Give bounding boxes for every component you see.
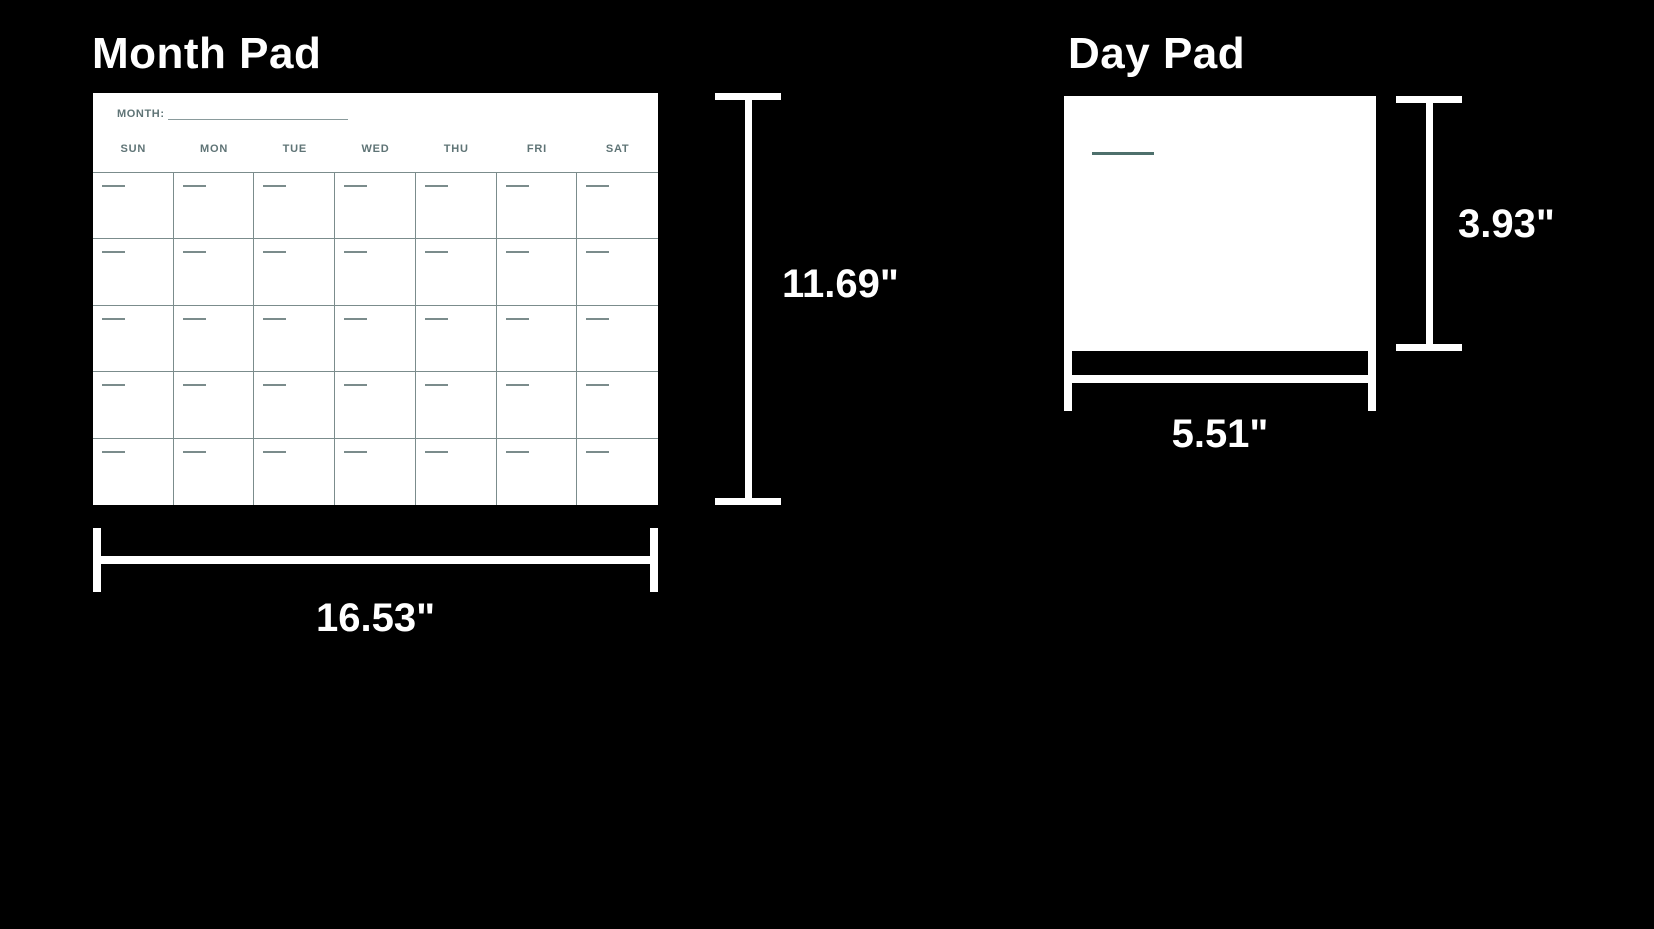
date-line [425, 185, 448, 187]
calendar-cell [93, 439, 174, 505]
date-line [102, 318, 125, 320]
month-pad-width-label: 16.53" [93, 596, 658, 641]
calendar-cell [577, 306, 658, 372]
day-pad-card [1064, 96, 1376, 351]
calendar-cell [174, 306, 255, 372]
date-line [425, 318, 448, 320]
date-line [506, 451, 529, 453]
calendar-cell [335, 173, 416, 239]
date-line [263, 185, 286, 187]
calendar-cell [174, 372, 255, 438]
date-line [263, 384, 286, 386]
date-line [344, 318, 367, 320]
day-header-mon: MON [174, 143, 255, 155]
calendar-cell [174, 173, 255, 239]
date-line [586, 185, 609, 187]
date-line [425, 451, 448, 453]
date-line [102, 384, 125, 386]
calendar-cell [254, 306, 335, 372]
calendar-cell [93, 239, 174, 305]
dimension-cap-left [1064, 347, 1072, 411]
calendar-cell [254, 439, 335, 505]
month-pad-height-label: 11.69" [782, 262, 899, 307]
calendar-cell [497, 439, 578, 505]
calendar-grid [93, 172, 658, 505]
date-line [506, 251, 529, 253]
calendar-cell [416, 173, 497, 239]
dimension-stem [1426, 103, 1433, 344]
date-line [586, 384, 609, 386]
date-line [102, 451, 125, 453]
calendar-cell [497, 239, 578, 305]
month-field-label: MONTH: [117, 108, 165, 120]
calendar-cell [577, 439, 658, 505]
calendar-day-header-row: SUNMONTUEWEDTHUFRISAT [93, 143, 658, 155]
calendar-cell [93, 372, 174, 438]
month-field-underline [168, 107, 348, 120]
month-pad-width-dimension-line [93, 528, 658, 592]
calendar-cell [577, 173, 658, 239]
day-header-fri: FRI [497, 143, 578, 155]
date-line [102, 185, 125, 187]
dimension-cap-bottom [1396, 344, 1462, 351]
calendar-cell [497, 173, 578, 239]
calendar-cell [254, 372, 335, 438]
calendar-cell [174, 239, 255, 305]
date-line [425, 251, 448, 253]
dimension-stem [1072, 375, 1368, 383]
calendar-cell [497, 306, 578, 372]
date-line [183, 251, 206, 253]
dimension-cap-right [650, 528, 658, 592]
month-pad-card: MONTH: SUNMONTUEWEDTHUFRISAT [93, 93, 658, 505]
calendar-cell [416, 306, 497, 372]
calendar-cell [577, 239, 658, 305]
calendar-cell [93, 173, 174, 239]
calendar-cell [416, 372, 497, 438]
day-pad-width-label: 5.51" [1064, 412, 1376, 457]
date-line [586, 318, 609, 320]
day-header-sat: SAT [577, 143, 658, 155]
date-line [344, 251, 367, 253]
calendar-cell [335, 372, 416, 438]
diagram-canvas: Month Pad MONTH: SUNMONTUEWEDTHUFRISAT 1… [0, 0, 1654, 929]
month-pad-height-dimension-line [715, 93, 781, 505]
calendar-cell [577, 372, 658, 438]
date-line [183, 185, 206, 187]
calendar-cell [335, 439, 416, 505]
calendar-cell [335, 306, 416, 372]
date-line [506, 185, 529, 187]
day-header-tue: TUE [254, 143, 335, 155]
calendar-cell [174, 439, 255, 505]
calendar-cell [254, 173, 335, 239]
dimension-cap-top [1396, 96, 1462, 103]
day-header-sun: SUN [93, 143, 174, 155]
dimension-cap-bottom [715, 498, 781, 505]
date-line [102, 251, 125, 253]
day-pad-width-dimension-line [1064, 347, 1376, 411]
day-pad-height-label: 3.93" [1458, 202, 1555, 247]
date-line [586, 451, 609, 453]
day-pad-writing-line [1092, 152, 1154, 155]
month-field: MONTH: [117, 107, 348, 120]
date-line [506, 318, 529, 320]
calendar-cell [497, 372, 578, 438]
calendar-cell [254, 239, 335, 305]
dimension-stem [745, 100, 752, 498]
date-line [425, 384, 448, 386]
date-line [263, 318, 286, 320]
date-line [344, 384, 367, 386]
day-pad-height-dimension-line [1396, 96, 1462, 351]
dimension-cap-right [1368, 347, 1376, 411]
date-line [344, 451, 367, 453]
day-header-wed: WED [335, 143, 416, 155]
dimension-cap-left [93, 528, 101, 592]
month-pad-title: Month Pad [92, 30, 321, 78]
calendar-cell [93, 306, 174, 372]
date-line [263, 451, 286, 453]
date-line [506, 384, 529, 386]
day-pad-title: Day Pad [1068, 30, 1245, 78]
calendar-cell [416, 439, 497, 505]
dimension-stem [101, 556, 650, 564]
date-line [183, 451, 206, 453]
calendar-cell [335, 239, 416, 305]
date-line [586, 251, 609, 253]
date-line [183, 318, 206, 320]
calendar-cell [416, 239, 497, 305]
date-line [344, 185, 367, 187]
date-line [183, 384, 206, 386]
dimension-cap-top [715, 93, 781, 100]
day-header-thu: THU [416, 143, 497, 155]
date-line [263, 251, 286, 253]
